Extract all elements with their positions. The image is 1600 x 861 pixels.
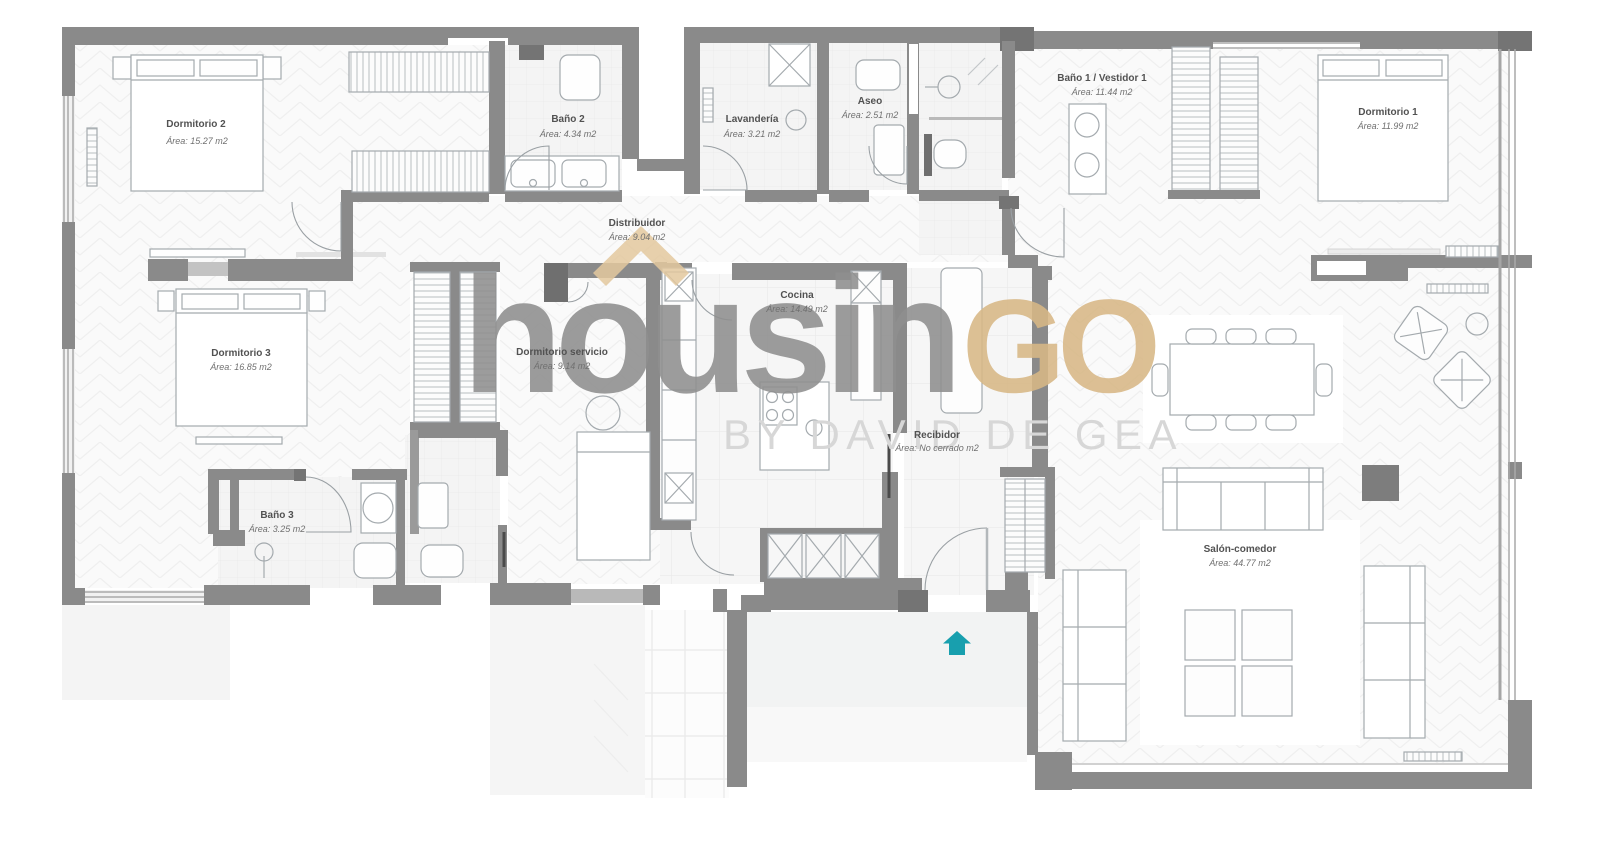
svg-text:Área: 9.14 m2: Área: 9.14 m2	[533, 361, 591, 371]
svg-text:Baño 2: Baño 2	[551, 114, 585, 125]
svg-text:GO: GO	[962, 273, 1155, 421]
svg-text:Baño 3: Baño 3	[260, 510, 294, 521]
svg-text:Dormitorio 2: Dormitorio 2	[166, 119, 226, 130]
svg-text:Área: 16.85 m2: Área: 16.85 m2	[209, 362, 272, 372]
svg-text:Área: 11.44 m2: Área: 11.44 m2	[1071, 87, 1133, 97]
svg-text:Baño 1 / Vestidor 1: Baño 1 / Vestidor 1	[1057, 73, 1147, 84]
svg-text:Salón-comedor: Salón-comedor	[1204, 544, 1277, 555]
svg-text:Área: 14.49 m2: Área: 14.49 m2	[765, 304, 828, 314]
svg-text:Dormitorio 3: Dormitorio 3	[211, 348, 271, 359]
svg-text:Área: 11.99 m2: Área: 11.99 m2	[1357, 121, 1419, 131]
svg-text:Área: 15.27 m2: Área: 15.27 m2	[165, 136, 228, 146]
svg-text:Área: 3.25 m2: Área: 3.25 m2	[248, 524, 306, 534]
svg-text:Área: No cerrado m2: Área: No cerrado m2	[894, 443, 979, 453]
svg-text:Área: 44.77 m2: Área: 44.77 m2	[1208, 558, 1271, 568]
svg-text:Área: 4.34 m2: Área: 4.34 m2	[539, 129, 597, 139]
svg-text:housin: housin	[462, 243, 955, 427]
svg-text:Dormitorio servicio: Dormitorio servicio	[516, 347, 608, 358]
svg-text:Cocina: Cocina	[780, 290, 814, 301]
svg-text:Lavandería: Lavandería	[726, 114, 779, 125]
svg-text:Área: 9.04 m2: Área: 9.04 m2	[608, 232, 666, 242]
svg-text:Área: 2.51 m2: Área: 2.51 m2	[841, 110, 899, 120]
svg-text:Aseo: Aseo	[858, 96, 882, 107]
svg-text:Dormitorio 1: Dormitorio 1	[1358, 107, 1418, 118]
svg-text:Área: 3.21 m2: Área: 3.21 m2	[723, 129, 781, 139]
svg-text:Distribuidor: Distribuidor	[609, 218, 666, 229]
svg-text:Recibidor: Recibidor	[914, 430, 960, 441]
